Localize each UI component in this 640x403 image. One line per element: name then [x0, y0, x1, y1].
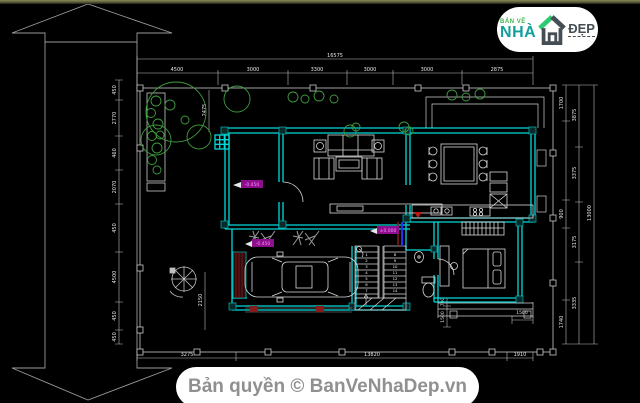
toilet-icon: [422, 277, 435, 283]
kitchen-counter: [412, 172, 533, 218]
elevation-value: -0.450: [256, 241, 271, 247]
tree-icon: [224, 86, 250, 112]
washbasin-icon: [415, 252, 424, 263]
dining-table-icon: [441, 144, 477, 184]
dimension-texts: 16575 4500 3000 3300 3000 3000 2875 450 …: [112, 53, 593, 358]
step-number: 4: [365, 270, 368, 275]
bathroom-fixtures: [415, 252, 436, 298]
logo-brand-main: NHÀ: [500, 25, 536, 41]
site-logo: BẢN VẼ NHÀ ĐẸP: [497, 7, 598, 52]
house-walls: [215, 128, 535, 310]
desk-icon: [440, 246, 449, 286]
dim-left-3: 460: [112, 148, 118, 158]
floor-plan-canvas: 16575 4500 3000 3300 3000 3000 2875 450 …: [0, 0, 640, 403]
door-swing-arc: [283, 182, 303, 202]
site-fence: [137, 85, 556, 355]
dim-left-1: 450: [112, 85, 118, 95]
dim-yard-height: 2150: [198, 294, 204, 307]
stair-handrail: [379, 246, 383, 298]
dim-right-c2-4: 3335: [572, 297, 578, 310]
step-number: 3: [365, 264, 368, 269]
sink-icon: [431, 207, 441, 215]
dim-right-c1-1: 1700: [559, 97, 565, 110]
shrub-icon: [288, 92, 298, 102]
dim-right-c2-1: 3875: [572, 109, 578, 122]
step-number: 9: [394, 258, 397, 263]
logo-brand-accent: ĐẸP: [568, 22, 595, 37]
column-marker: [316, 306, 324, 312]
coffee-table-icon: [336, 157, 362, 171]
dim-top-5: 3000: [421, 67, 434, 73]
step-number: 7: [365, 288, 368, 293]
sofa-icon: [328, 135, 374, 156]
dim-bottom-2: 13820: [364, 352, 380, 358]
column-marker: [250, 306, 258, 312]
step-number: 10: [393, 264, 398, 269]
dim-left-6: 4500: [112, 271, 118, 284]
armchair-icon: [362, 158, 382, 179]
dim-top-6: 2875: [491, 67, 504, 73]
side-table-icon: [314, 140, 326, 152]
elevation-marker: -0.450: [245, 239, 274, 247]
copyright-watermark: Bản quyền © BanVeNhaDep.vn: [176, 367, 479, 403]
elevation-marker: -0.450: [233, 180, 263, 188]
planter-plants: [151, 96, 161, 106]
road-arrows: [12, 4, 172, 400]
step-number: 13: [393, 282, 398, 287]
car-icon: [245, 252, 358, 302]
dim-bottom-1: 3275: [181, 352, 194, 358]
dim-top-total: 16575: [327, 53, 343, 59]
red-marker: [414, 212, 422, 218]
viewport-top-border: [0, 0, 640, 4]
step-number: 1: [365, 252, 368, 257]
stair-landing: [355, 298, 406, 310]
dim-top-4: 3000: [364, 67, 377, 73]
yard-tree-symbol: [170, 266, 197, 297]
copyright-text: Bản quyền © BanVeNhaDep.vn: [188, 376, 467, 398]
step-number: 5: [365, 276, 368, 281]
shrub-icon: [447, 90, 457, 100]
bedroom-furniture: [438, 222, 505, 288]
cad-screenshot: 16575 4500 3000 3300 3000 3000 2875 450 …: [0, 0, 640, 403]
dim-right-c2-3: 3175: [572, 236, 578, 249]
step-number: 12: [393, 276, 398, 281]
elevation-value: -0.450: [245, 182, 260, 188]
dim-left-2: 2770: [112, 112, 118, 125]
dim-left-8: 450: [112, 332, 118, 342]
elevation-value: ±0.000: [380, 228, 397, 234]
dining-set: [429, 144, 487, 184]
stair-direction-arrow: [364, 294, 368, 305]
step-number: 11: [393, 270, 398, 275]
house-icon: [537, 13, 567, 47]
logo-text-block: BẢN VẼ NHÀ: [500, 19, 536, 41]
cabinet-icon: [490, 172, 507, 181]
dim-right-c1-3: 1740: [559, 316, 565, 329]
dim-top-2: 3000: [247, 67, 260, 73]
staircase: 1 2 3 4 5 6 7 8 9 10 11 12 13 14: [355, 246, 406, 310]
dim-right-c2-2: 3375: [572, 167, 578, 180]
step-number: 8: [394, 252, 397, 257]
dim-left-5: 450: [112, 223, 118, 233]
dim-left-4: 2070: [112, 181, 118, 194]
dim-top-1: 4500: [171, 67, 184, 73]
armchair-icon: [314, 158, 334, 179]
dim-top-3: 3300: [311, 67, 324, 73]
dim-bottom-3: 1910: [514, 352, 527, 358]
step-number: 14: [393, 288, 398, 293]
bed-icon: [463, 249, 505, 288]
living-room-furniture: [283, 135, 442, 213]
step-number: 2: [365, 258, 368, 263]
dim-right-c1-2: 900: [559, 209, 565, 219]
elevation-marker: ±0.000: [370, 226, 399, 234]
elevation-labels: -0.450 -0.450 ±0.000: [233, 180, 399, 247]
dim-right-total: 13000: [587, 205, 593, 221]
dim-left-7: 450: [112, 311, 118, 321]
dim-wc-2: 1500: [440, 311, 446, 323]
step-number: 6: [365, 282, 368, 287]
